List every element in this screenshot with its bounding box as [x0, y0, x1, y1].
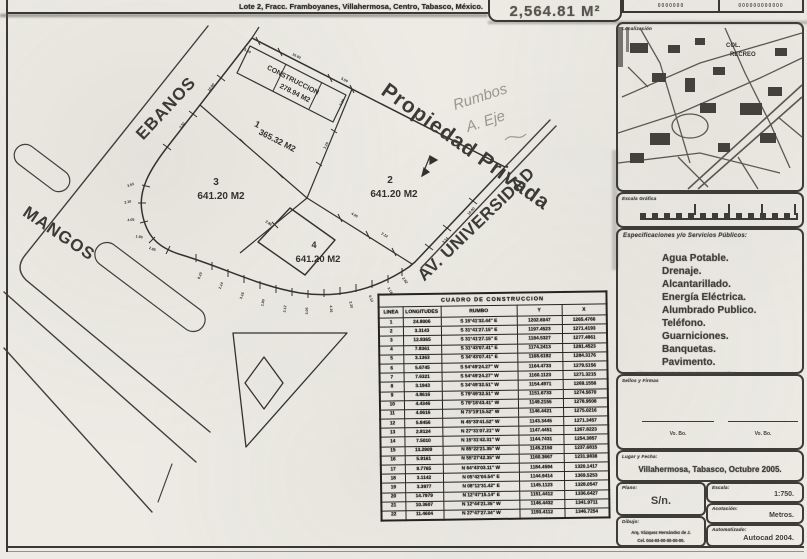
scale-bar-post: [761, 204, 763, 215]
cell-longitud: 3.1142: [405, 473, 443, 483]
col-header-y: Y: [517, 305, 562, 317]
map-blocks: [618, 27, 787, 163]
service-item: Guarniciones.: [662, 330, 756, 343]
code-value-2: 000000000000: [738, 3, 783, 9]
svg-text:3.05: 3.05: [305, 307, 309, 314]
svg-text:2.10: 2.10: [124, 199, 132, 204]
escala-label: Escala:: [712, 485, 730, 490]
cell-longitud: 7.5010: [404, 437, 442, 447]
svg-text:1.80: 1.80: [260, 299, 265, 307]
cell-linea: 14: [380, 437, 404, 447]
svg-text:3.20: 3.20: [339, 99, 346, 107]
scale-bar-base: [640, 218, 798, 220]
code-box-1: 0000000: [622, 0, 718, 13]
cell-longitud: 2.8124: [404, 427, 442, 437]
map-label-col: COL.: [726, 43, 741, 49]
service-item: Pavimento.: [662, 356, 756, 369]
cell-longitud: 3.3143: [403, 326, 441, 336]
service-item: Alumbrado Publico.: [662, 304, 756, 317]
svg-text:2.62: 2.62: [401, 276, 408, 284]
cell-linea: 11: [380, 410, 404, 420]
cell-linea: 20: [381, 492, 405, 502]
svg-text:5.50: 5.50: [340, 77, 348, 84]
service-item: Teléfono.: [662, 317, 756, 330]
escala-grafica-label: Escala Gráfica: [622, 196, 656, 201]
escala-grafica-box: Escala Gráfica: [616, 192, 804, 228]
cell-linea: 12: [380, 419, 404, 429]
svg-text:5.50: 5.50: [243, 48, 251, 55]
lot2-number: 2: [387, 175, 393, 186]
cell-longitud: 10.3607: [405, 501, 443, 511]
cell-linea: 15: [381, 446, 405, 456]
svg-text:2.86: 2.86: [265, 220, 273, 227]
cell-longitud: 5.9161: [405, 455, 443, 465]
cuadro-de-construccion: CUADRO DE CONSTRUCCION LINEA LONGITUDES …: [377, 290, 610, 521]
automatizado-label: Automatizado:: [712, 527, 747, 532]
cell-linea: 8: [380, 382, 404, 392]
cell-x: 1346.7254: [564, 508, 609, 518]
dibujo-label: Dibujo:: [622, 519, 639, 524]
servicios-box: Especificaciones y/o Servicios Públicos:…: [616, 228, 804, 374]
lugar-fecha-label: Lugar y Fecha:: [622, 454, 657, 459]
cell-longitud: 14.7979: [405, 492, 443, 502]
cell-linea: 13: [380, 428, 404, 438]
svg-text:2.12: 2.12: [283, 305, 288, 312]
cuadro-body: 1 24.8006 S 15°41'32.44" E 1202.6047 126…: [379, 315, 610, 520]
col-header-linea: LINEA: [379, 307, 403, 318]
cell-linea: 22: [381, 511, 405, 521]
svg-text:2.14: 2.14: [218, 282, 224, 290]
code-value-1: 0000000: [658, 3, 684, 9]
service-item: Alcantarillado.: [662, 278, 756, 291]
svg-text:1.90: 1.90: [135, 235, 142, 240]
cell-linea: 16: [381, 456, 405, 466]
cuadro-head: CUADRO DE CONSTRUCCION LINEA LONGITUDES …: [378, 291, 606, 318]
svg-text:4.05: 4.05: [127, 218, 134, 223]
cell-y: 1193.4112: [519, 508, 564, 518]
cell-longitud: 8.7765: [405, 464, 443, 474]
svg-text:3.53: 3.53: [127, 182, 135, 188]
scale-bar-post: [794, 204, 796, 215]
dibujo-line1: Arq. Vázquez Hernández de J.: [618, 530, 704, 535]
lot2-area: 641.20 M2: [370, 189, 418, 200]
cell-linea: 10: [380, 400, 404, 410]
cell-linea: 2: [379, 327, 403, 337]
scale-bar-post: [694, 204, 696, 215]
lot3-area: 641.20 M2: [197, 191, 245, 202]
svg-text:6.12: 6.12: [368, 295, 374, 303]
handwritten-note-line2: A. Eje: [463, 107, 507, 136]
cell-linea: 7: [380, 373, 404, 383]
escala-box: Escala: 1:750.: [706, 482, 804, 503]
vobo-line-right: Vo. Bo.: [728, 421, 798, 440]
service-item: Agua Potable.: [662, 252, 756, 265]
cell-linea: 21: [381, 501, 405, 511]
location-map: COL. RECREO: [618, 27, 802, 191]
cell-longitud: 24.8006: [403, 317, 441, 327]
automatizado-box: Automatizado: Autocad 2004.: [706, 524, 804, 547]
lugar-fecha-box: Lugar y Fecha: Villahermosa, Tabasco, Oc…: [616, 450, 804, 482]
cell-longitud: 11.4604: [405, 510, 443, 520]
code-box-2: 000000000000: [718, 0, 804, 13]
lot3-number: 3: [213, 177, 219, 188]
vobo-left-label: Vo. Bo.: [670, 431, 687, 437]
sellos-box: Sellos y Firmas Vo. Bo. Vo. Bo.: [616, 374, 804, 450]
service-item: Energía Eléctrica.: [662, 291, 756, 304]
cell-rumbo: N 27°47'27.34" W: [443, 509, 519, 519]
cell-linea: 9: [380, 391, 404, 401]
servicios-heading: Especificaciones y/o Servicios Públicos:: [623, 233, 747, 239]
cell-longitud: 7.8361: [403, 345, 441, 355]
cell-linea: 4: [379, 345, 403, 355]
cell-longitud: 12.8365: [403, 336, 441, 346]
lot4-number: 4: [311, 240, 316, 250]
scanned-survey-sheet: Lote 2, Fracc. Framboyanes, Villahermosa…: [0, 0, 807, 559]
svg-text:4.16: 4.16: [329, 305, 334, 312]
cell-linea: 1: [379, 318, 403, 328]
cuadro-row: 22 11.4604 N 27°47'27.34" W 1193.4112 13…: [381, 508, 609, 520]
vobo-right-label: Vo. Bo.: [755, 431, 772, 437]
cell-longitud: 13.2909: [405, 446, 443, 456]
acotacion-label: Acotación:: [712, 506, 738, 511]
lugar-fecha-value: Villahermosa, Tabasco, Octubre 2005.: [618, 465, 802, 474]
lot4-area: 641.20 M2: [296, 254, 341, 265]
acotacion-value: Metros.: [769, 512, 794, 519]
cell-linea: 19: [381, 483, 405, 493]
cell-linea: 18: [381, 474, 405, 484]
servicios-list: Agua Potable. Drenaje. Alcantarillado. E…: [662, 252, 756, 369]
plano-box: Plano: S/n.: [616, 482, 706, 516]
plano-value: S/n.: [618, 495, 704, 507]
lot1-area: 365.32 M2: [257, 127, 298, 154]
cell-linea: 6: [379, 364, 403, 374]
cell-linea: 5: [379, 355, 403, 365]
service-item: Banquetas.: [662, 343, 756, 356]
cell-longitud: 3.3977: [405, 483, 443, 493]
svg-text:3.16: 3.16: [239, 292, 245, 300]
north-arrow-icon: [422, 156, 437, 176]
svg-text:2.20: 2.20: [348, 301, 353, 309]
service-item: Drenaje.: [662, 265, 756, 278]
dibujo-line2: Cel. 044-93-00-00-00-00.: [618, 538, 704, 543]
dibujo-box: Dibujo: Arq. Vázquez Hernández de J. Cel…: [616, 516, 706, 547]
map-label-recreo: RECREO: [730, 52, 756, 58]
svg-text:4.00: 4.00: [350, 212, 358, 219]
automatizado-value: Autocad 2004.: [743, 533, 794, 542]
vobo-line-left: Vo. Bo.: [642, 421, 714, 440]
svg-text:8.10: 8.10: [197, 272, 203, 280]
localizacion-box: Localización: [616, 22, 804, 192]
col-header-longitudes: LONGITUDES: [403, 306, 441, 318]
svg-text:2.85: 2.85: [148, 246, 156, 252]
plano-label: Plano:: [622, 485, 637, 490]
scale-bar-post: [728, 204, 730, 215]
cell-linea: 17: [381, 465, 405, 475]
sellos-label: Sellos y Firmas: [622, 378, 659, 383]
col-header-x: X: [562, 304, 607, 316]
acotacion-box: Acotación: Metros.: [706, 503, 804, 524]
cell-linea: 3: [379, 336, 403, 346]
escala-value: 1:750.: [774, 491, 794, 498]
svg-text:2.12: 2.12: [380, 232, 388, 239]
